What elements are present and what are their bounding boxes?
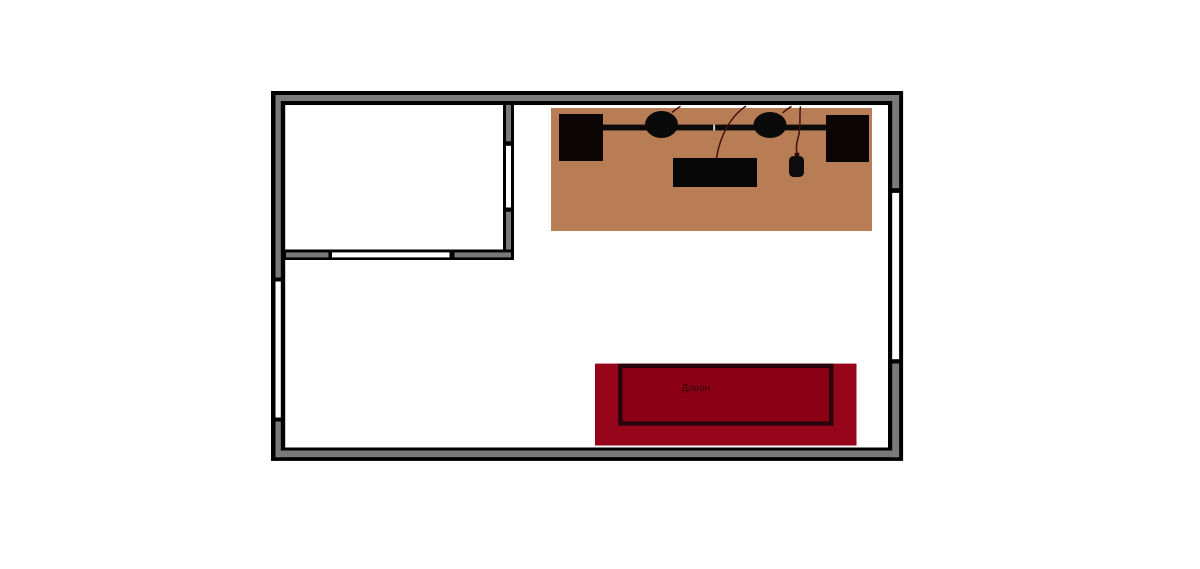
svg-text:Диван: Диван xyxy=(682,383,711,394)
